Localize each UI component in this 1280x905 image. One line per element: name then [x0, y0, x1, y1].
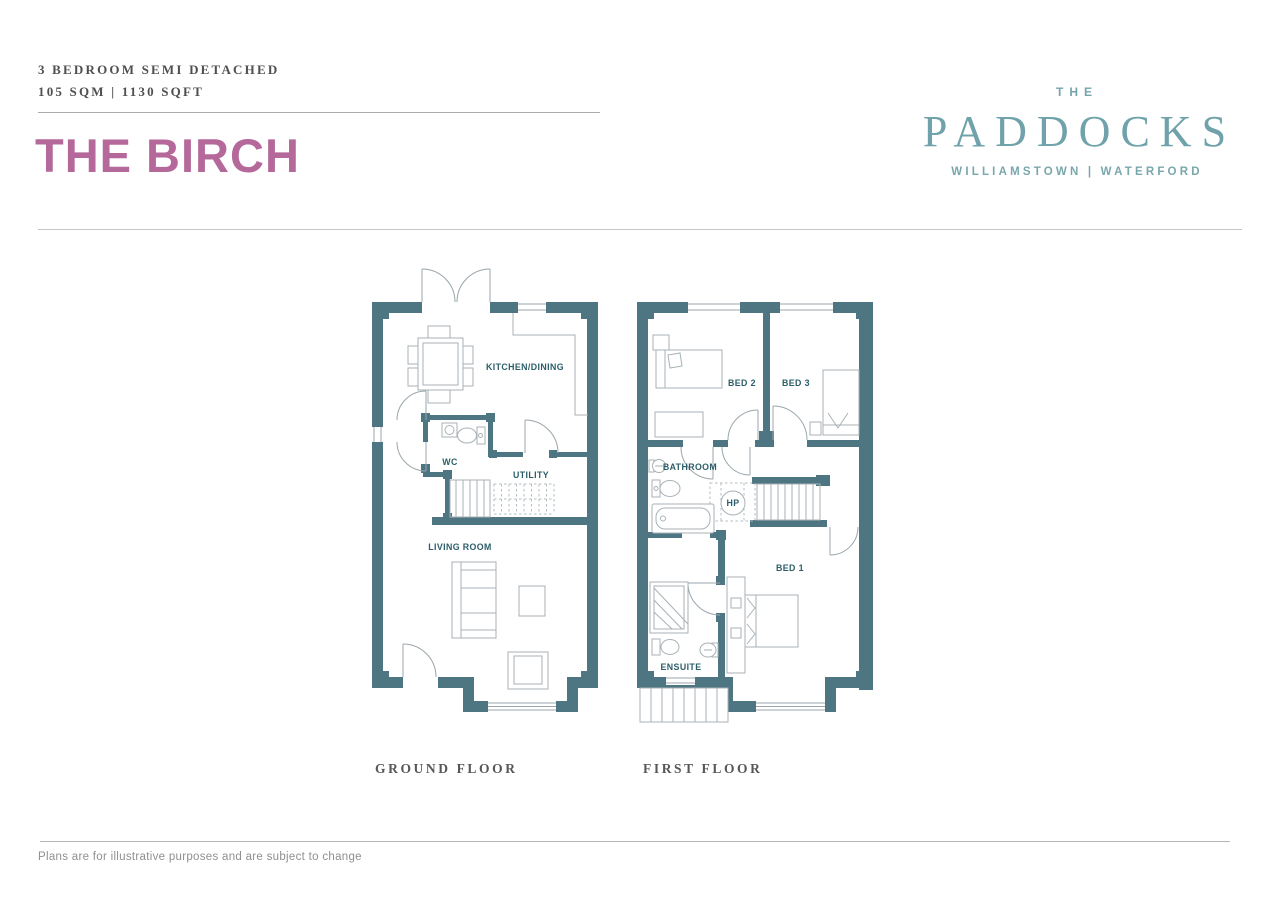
development-logo: THE PADDOCKS WILLIAMSTOWN | WATERFORD	[915, 85, 1239, 178]
ensuite-fixtures	[650, 582, 718, 657]
ensuite-basin-icon	[700, 643, 718, 657]
first-stairs	[757, 484, 820, 520]
ensuite-window-icon	[666, 676, 695, 685]
ensuite-door-icon	[688, 583, 720, 615]
dining-table-icon	[408, 326, 473, 403]
ground-floor-caption: GROUND FLOOR	[375, 761, 518, 777]
first-floor-caption: FIRST FLOOR	[643, 761, 763, 777]
ground-exterior-walls	[372, 302, 598, 712]
footer-divider	[40, 841, 1230, 842]
room-label-utility: UTILITY	[513, 470, 549, 480]
wc-toilet-icon	[458, 427, 486, 444]
ground-floor-plan: KITCHEN/DINING WC UTILITY LIVING ROOM	[372, 269, 598, 712]
floorplan-sheet: 3 BEDROOM SEMI DETACHED 105 SQM | 1130 S…	[0, 0, 1280, 905]
bed2-window-icon	[688, 302, 740, 313]
bed3-furniture	[810, 370, 859, 435]
room-label-bed3: BED 3	[782, 378, 810, 388]
wc-basin-icon	[442, 423, 457, 437]
bed1-bay-window-icon	[756, 701, 825, 712]
bathtub-icon	[652, 504, 714, 533]
bed1-furniture	[727, 577, 798, 673]
living-bay-window-icon	[488, 701, 556, 712]
room-label-bed1: BED 1	[776, 563, 804, 573]
french-doors-icon	[422, 269, 490, 302]
bed1-door-icon	[830, 527, 858, 555]
bed2-door-icon	[728, 410, 758, 440]
hall-window-icon	[372, 427, 383, 442]
property-type-line: 3 BEDROOM SEMI DETACHED	[38, 62, 279, 78]
page-title: THE BIRCH	[35, 128, 300, 183]
kitchen-window-icon	[518, 302, 546, 313]
bed2-furniture	[653, 335, 722, 437]
bed3-locker-icon	[810, 422, 821, 435]
armchair-icon	[508, 652, 548, 689]
header-divider	[38, 112, 600, 113]
front-door-icon	[403, 644, 436, 677]
room-label-bed2: BED 2	[728, 378, 756, 388]
bed3-bed-icon	[823, 370, 859, 435]
utility-door-icon	[525, 420, 558, 453]
bed2-dresser-icon	[655, 412, 703, 437]
bed2-locker-icon	[653, 335, 669, 350]
shower-icon	[650, 582, 688, 633]
ground-stairs	[450, 480, 490, 517]
wc-fixtures	[442, 423, 485, 444]
room-label-bathroom: BATHROOM	[663, 462, 717, 472]
property-size-line: 105 SQM | 1130 SQFT	[38, 84, 204, 100]
bed3-door-icon	[773, 406, 807, 440]
hot-press-door-icon	[722, 447, 750, 475]
room-label-ensuite: ENSUITE	[661, 662, 702, 672]
room-label-living-room: LIVING ROOM	[428, 542, 492, 552]
bed1-bed-icon	[745, 595, 798, 647]
bed3-window-icon	[780, 302, 833, 313]
logo-name: PADDOCKS	[920, 106, 1239, 157]
coffee-table-icon	[519, 586, 545, 616]
room-label-hot-press: HP	[726, 498, 739, 508]
ensuite-toilet-icon	[652, 639, 679, 655]
disclaimer-text: Plans are for illustrative purposes and …	[38, 851, 362, 863]
sofa-icon	[452, 562, 496, 638]
bed2-bed-icon	[656, 350, 722, 388]
utility-appliances-icon	[494, 484, 554, 514]
room-label-wc: WC	[442, 457, 458, 467]
logo-prefix: THE	[915, 85, 1239, 99]
content-divider	[38, 229, 1242, 230]
bathroom-toilet-icon	[652, 480, 680, 497]
bed1-wardrobe-icon	[727, 577, 745, 673]
front-multipane-window-icon	[640, 688, 728, 722]
first-floor-plan: BED 2 BED 3 BATHROOM HP BED 1 ENSUITE	[637, 302, 873, 722]
logo-location: WILLIAMSTOWN | WATERFORD	[915, 166, 1239, 178]
room-label-kitchen-dining: KITCHEN/DINING	[486, 362, 564, 372]
floor-plans-drawing: KITCHEN/DINING WC UTILITY LIVING ROOM	[330, 253, 890, 728]
